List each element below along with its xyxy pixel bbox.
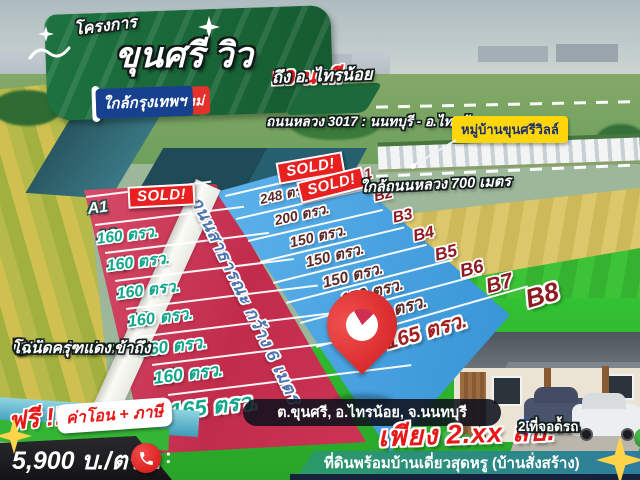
phone-call-button[interactable] xyxy=(131,443,161,473)
spec-label: 2 ที่จอดรถ xyxy=(518,415,578,437)
white-car xyxy=(572,404,640,436)
pin-hole xyxy=(346,309,378,341)
tagline-box: พื้นที่ความสุขใหม่ ใกล้กรุงเทพฯ xyxy=(91,86,100,122)
project-title: ขุนศรี วิว xyxy=(78,28,290,83)
factory-building xyxy=(478,46,548,62)
feature-label: โฉนดครุฑแดง xyxy=(12,335,111,360)
phone-icon xyxy=(138,450,155,467)
bottom-dark-bar xyxy=(290,474,640,480)
tagline-right: ใกล้กรุงเทพฯ xyxy=(95,86,193,119)
land-ad-poster: A1 A2 160 ตรว. A3 160 ตรว. A4 160 ตรว. A… xyxy=(0,0,640,480)
phone-colon: : xyxy=(165,446,172,469)
sold-sticker: SOLD! xyxy=(127,183,195,208)
village-name-badge: หมู่บ้านขุนศรีวิลล์ xyxy=(452,116,568,143)
factory-building xyxy=(556,44,618,62)
